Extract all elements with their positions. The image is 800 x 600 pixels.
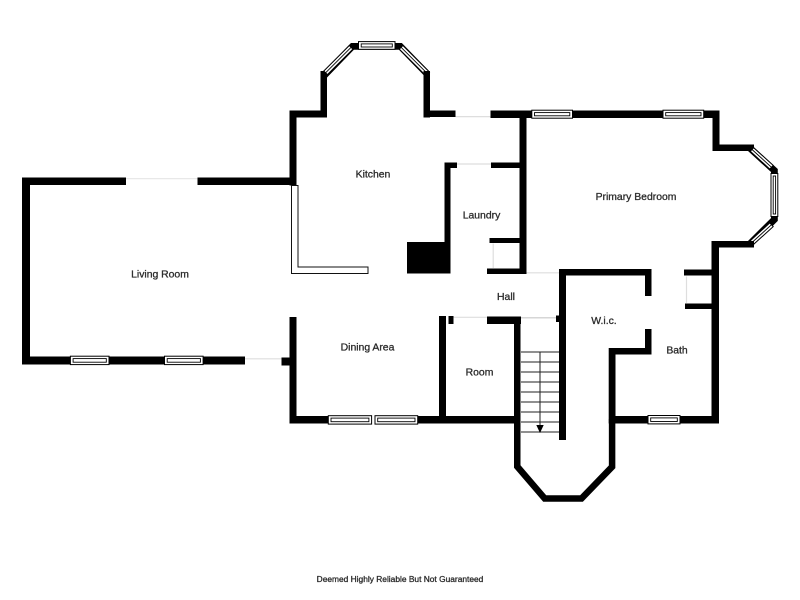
svg-text:Hall: Hall bbox=[497, 292, 515, 303]
svg-text:Deemed Highly Reliable But Not: Deemed Highly Reliable But Not Guarantee… bbox=[317, 574, 484, 584]
svg-text:Laundry: Laundry bbox=[463, 211, 501, 222]
svg-text:Living Room: Living Room bbox=[131, 270, 189, 281]
svg-text:Bath: Bath bbox=[666, 346, 688, 357]
svg-text:W.i.c.: W.i.c. bbox=[591, 316, 616, 327]
svg-text:Primary Bedroom: Primary Bedroom bbox=[596, 192, 677, 203]
svg-text:Dining Area: Dining Area bbox=[341, 343, 395, 354]
svg-text:Room: Room bbox=[466, 368, 494, 379]
svg-text:Kitchen: Kitchen bbox=[356, 170, 391, 181]
